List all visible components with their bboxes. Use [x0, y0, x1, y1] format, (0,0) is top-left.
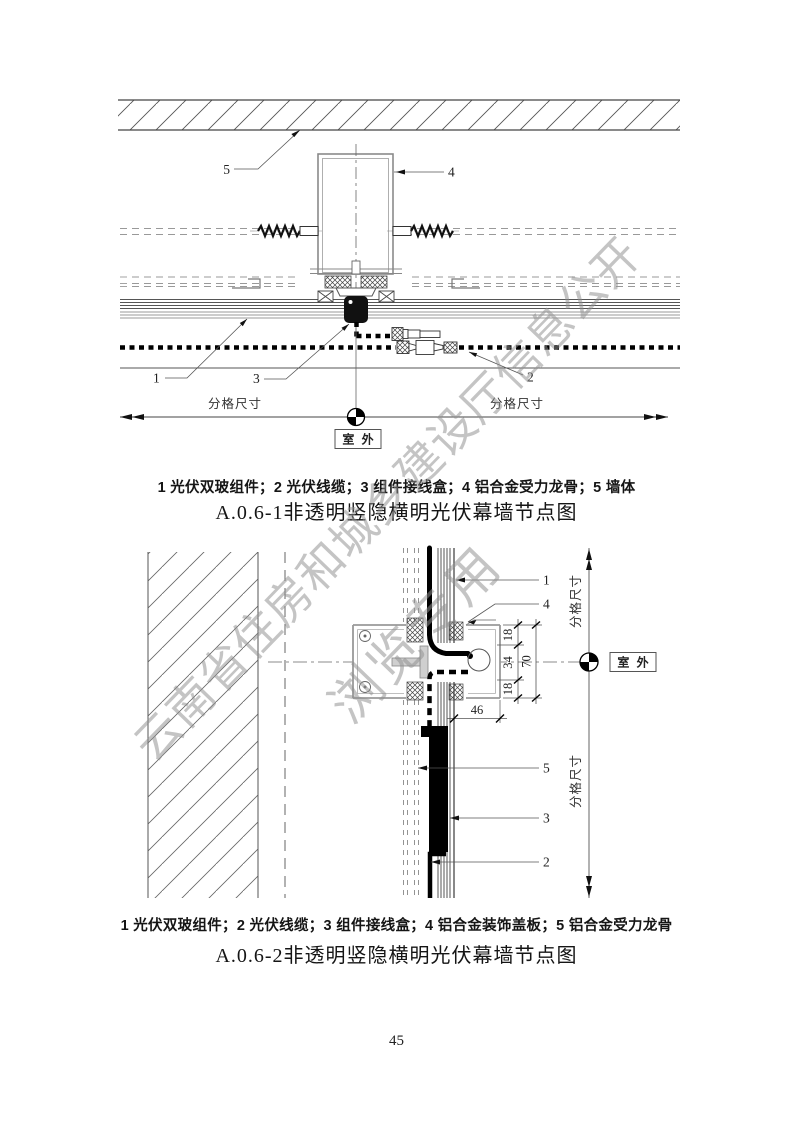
dim-18-bottom: 18 — [501, 683, 515, 696]
wall-hatch — [148, 552, 258, 898]
leader-label-2: 2 — [543, 855, 550, 870]
leader-label-1: 1 — [543, 573, 550, 588]
figure-1-legend: 1 光伏双玻组件；2 光伏线缆；3 组件接线盒；4 铝合金受力龙骨；5 墙体 — [0, 476, 793, 497]
dim-label-top: 分格尺寸 — [568, 574, 583, 628]
leader-label-1: 1 — [153, 371, 160, 386]
dim-label-bottom: 分格尺寸 — [568, 754, 583, 808]
dim-70: 70 — [520, 655, 534, 668]
leader-label-5: 5 — [223, 162, 230, 177]
datum-symbol — [580, 653, 598, 671]
leader-label-5: 5 — [543, 761, 550, 776]
grid-dimension: 分格尺寸 分格尺寸 — [120, 327, 668, 426]
diagram-a062: 18 34 18 70 46 分格尺寸 分格尺寸 室 外 — [138, 538, 672, 905]
spring-anchor-left — [250, 226, 324, 236]
outdoor-tag: 室 外 — [610, 653, 656, 672]
cable-connector-lower — [397, 341, 457, 355]
dim-18-top: 18 — [501, 629, 515, 642]
junction-box — [344, 296, 368, 323]
leader-label-4: 4 — [543, 597, 550, 612]
figure-2-title: A.0.6-2非透明竖隐横明光伏幕墙节点图 — [0, 939, 793, 968]
figure-2-legend: 1 光伏双玻组件；2 光伏线缆；3 组件接线盒；4 铝合金装饰盖板；5 铝合金受… — [0, 914, 793, 935]
dim-label-left: 分格尺寸 — [208, 396, 262, 411]
leader-label-3: 3 — [253, 371, 260, 386]
wall-hatch-band — [118, 100, 680, 130]
mullion-profile — [318, 154, 393, 274]
diagram-a061: 5 4 1 3 2 分格尺寸 分格尺寸 室 外 — [108, 88, 692, 460]
datum-symbol — [348, 409, 365, 426]
outdoor-label: 室 外 — [342, 432, 375, 447]
dim-34: 34 — [501, 656, 515, 669]
leader-label-2: 2 — [527, 370, 534, 385]
dim-label-right: 分格尺寸 — [490, 396, 544, 411]
cable-connector-upper — [392, 328, 440, 341]
anchor-rail-rows — [120, 229, 680, 287]
dim-46: 46 — [471, 703, 484, 717]
grid-dimension-vertical: 分格尺寸 分格尺寸 — [568, 548, 598, 898]
outdoor-tag: 室 外 — [335, 430, 381, 449]
page-number: 45 — [0, 1033, 793, 1050]
leader-label-4: 4 — [448, 165, 455, 180]
outdoor-label: 室 外 — [617, 655, 650, 670]
figure-1-title: A.0.6-1非透明竖隐横明光伏幕墙节点图 — [0, 496, 793, 525]
leader-label-3: 3 — [543, 811, 550, 826]
